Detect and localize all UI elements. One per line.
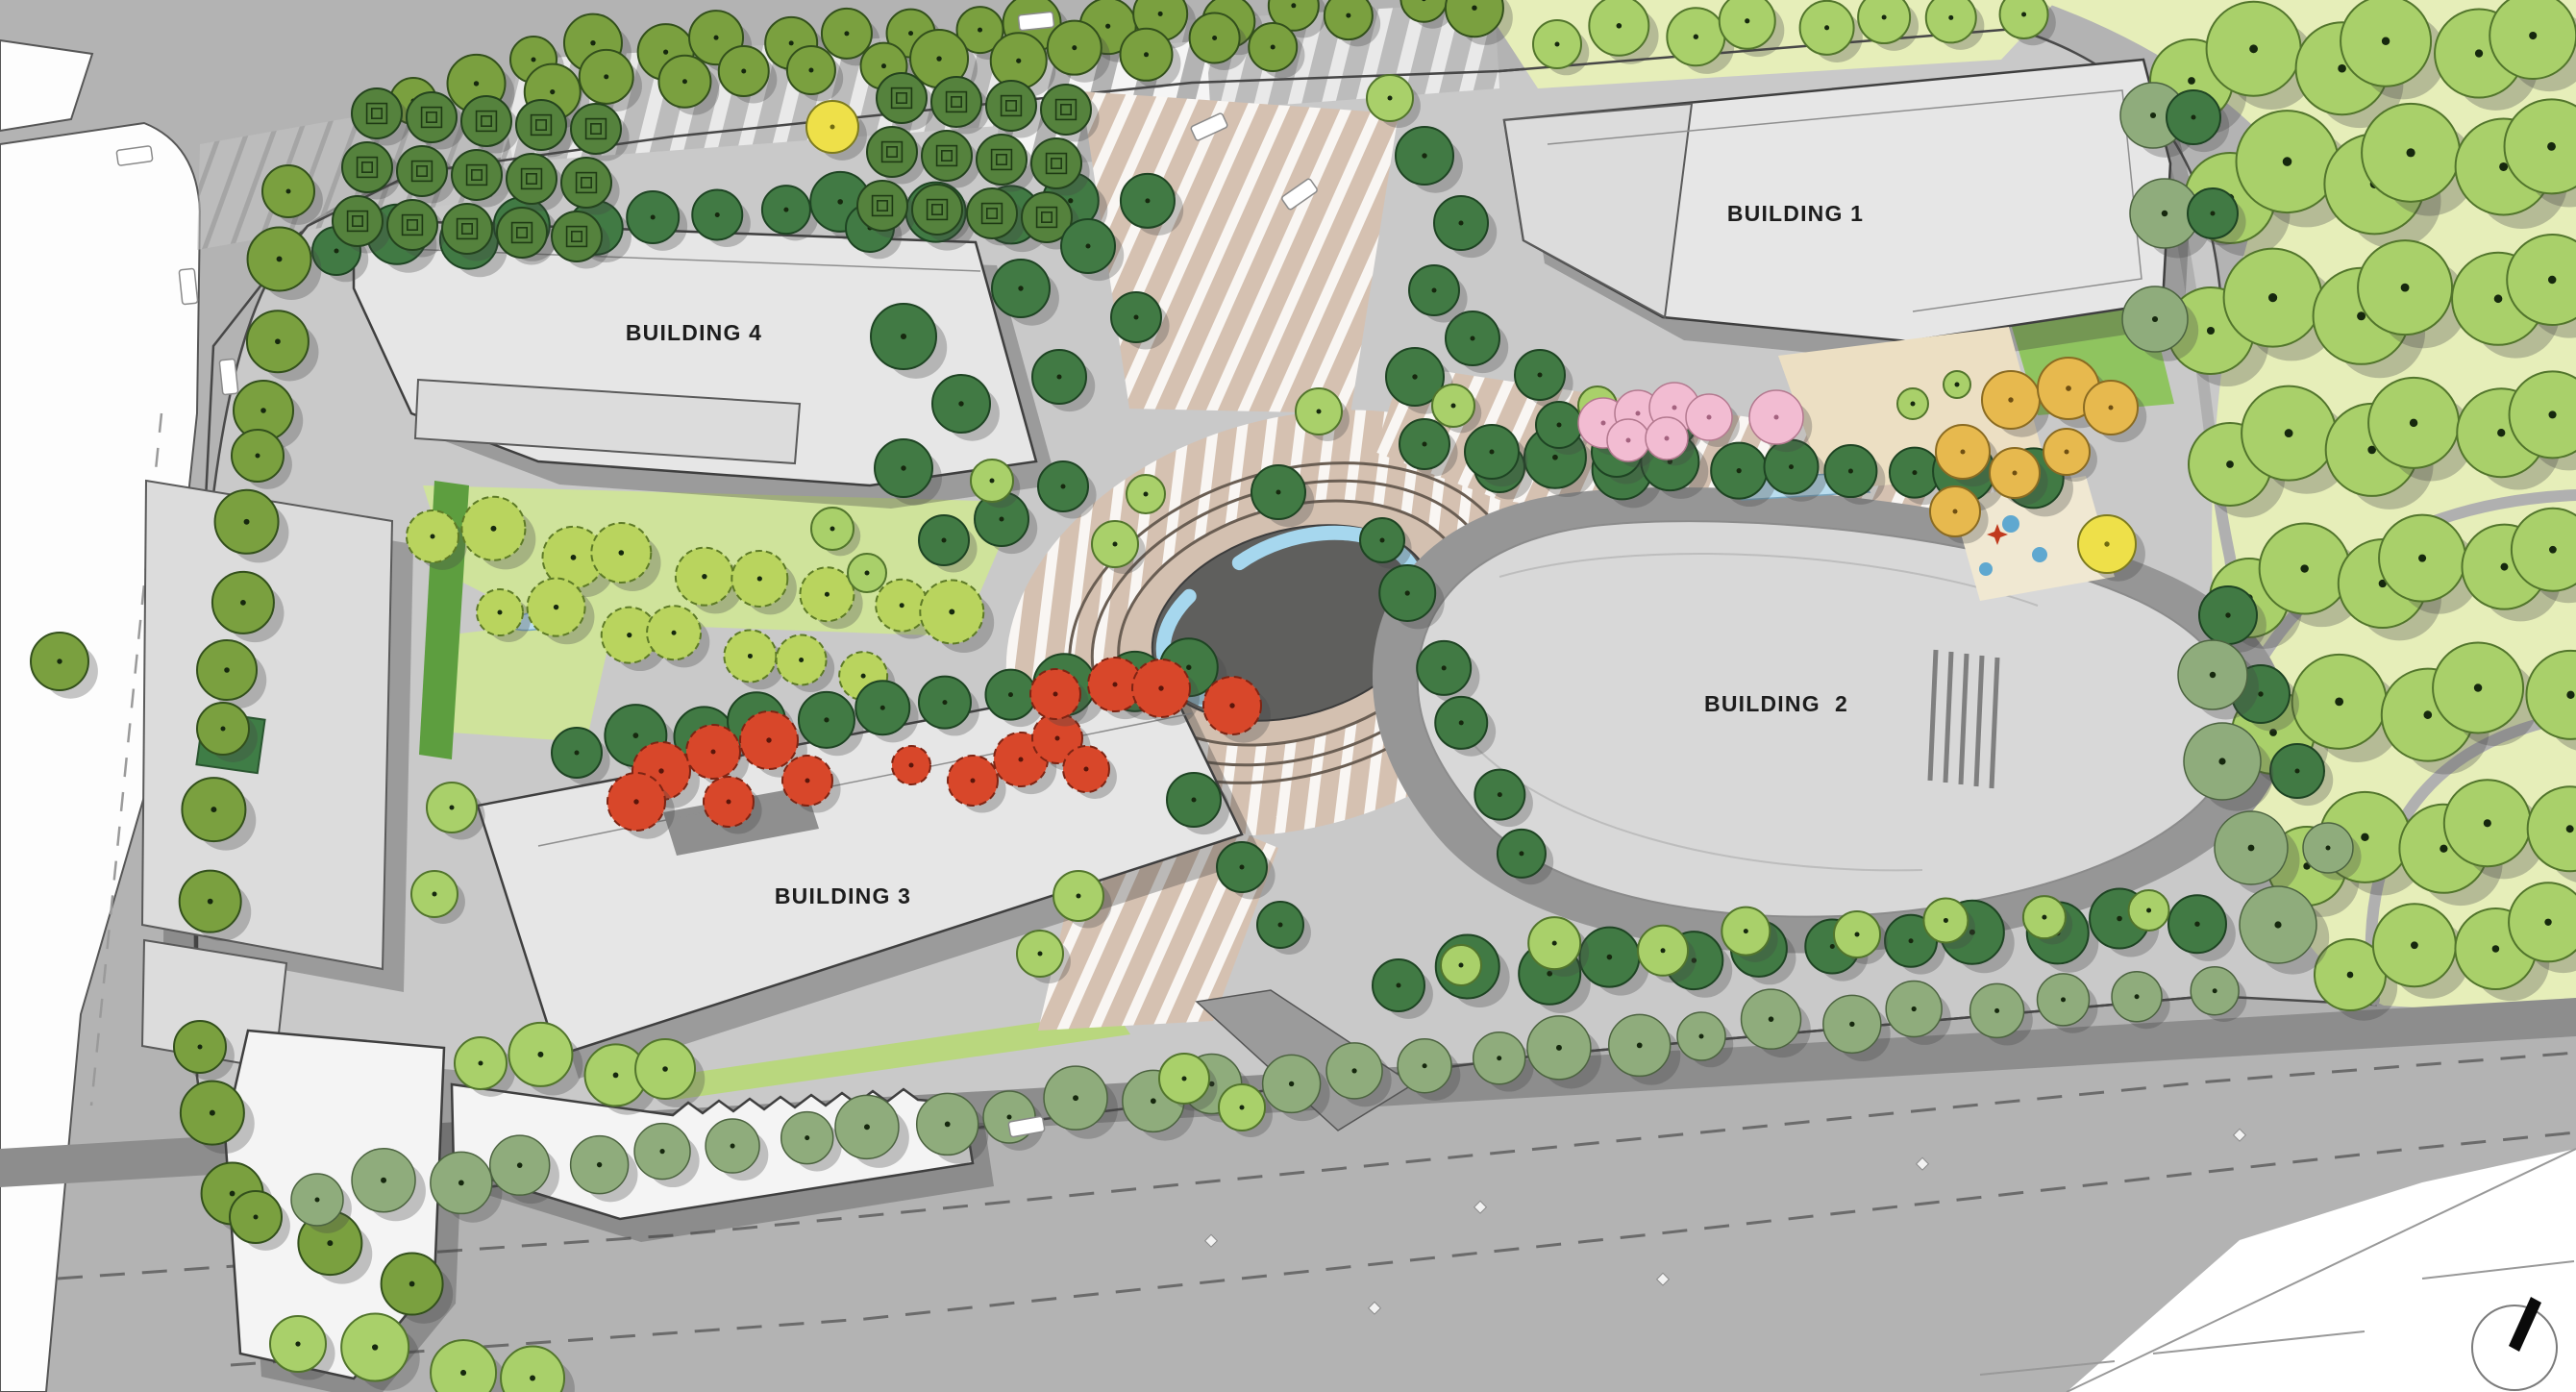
tree [848,554,886,592]
building-4-label: BUILDING 4 [626,320,762,345]
tree [892,746,930,784]
site-master-plan: BUILDING 1 BUILDING 2 BUILDING 3 BUILDIN… [0,0,2576,1392]
building-2-label: BUILDING 2 [1704,691,1848,716]
tree [2129,890,2169,931]
building-3-label: BUILDING 3 [775,883,911,908]
tree [1944,371,1970,398]
tree [1441,945,1481,985]
tree [1127,475,1165,513]
tree [1897,388,1928,419]
master-plan-drawing: BUILDING 1 BUILDING 2 BUILDING 3 BUILDIN… [0,0,2576,1392]
building-1-label: BUILDING 1 [1727,201,1864,226]
